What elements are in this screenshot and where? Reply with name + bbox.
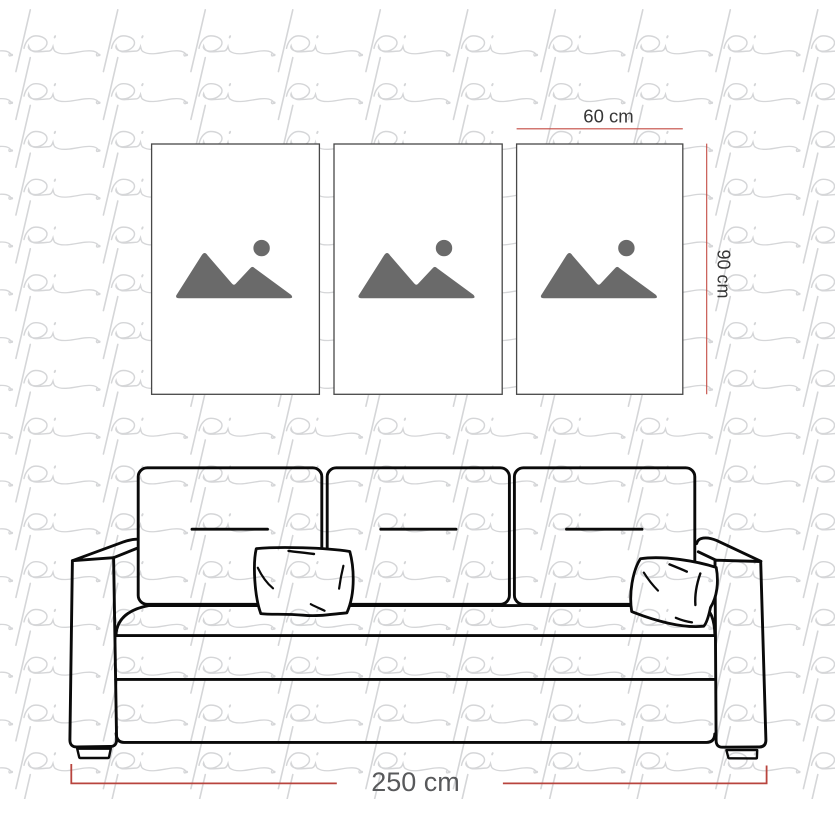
svg-text:250 cm: 250 cm xyxy=(371,767,460,797)
svg-text:60 cm: 60 cm xyxy=(583,106,633,127)
svg-text:90 cm: 90 cm xyxy=(713,249,733,298)
